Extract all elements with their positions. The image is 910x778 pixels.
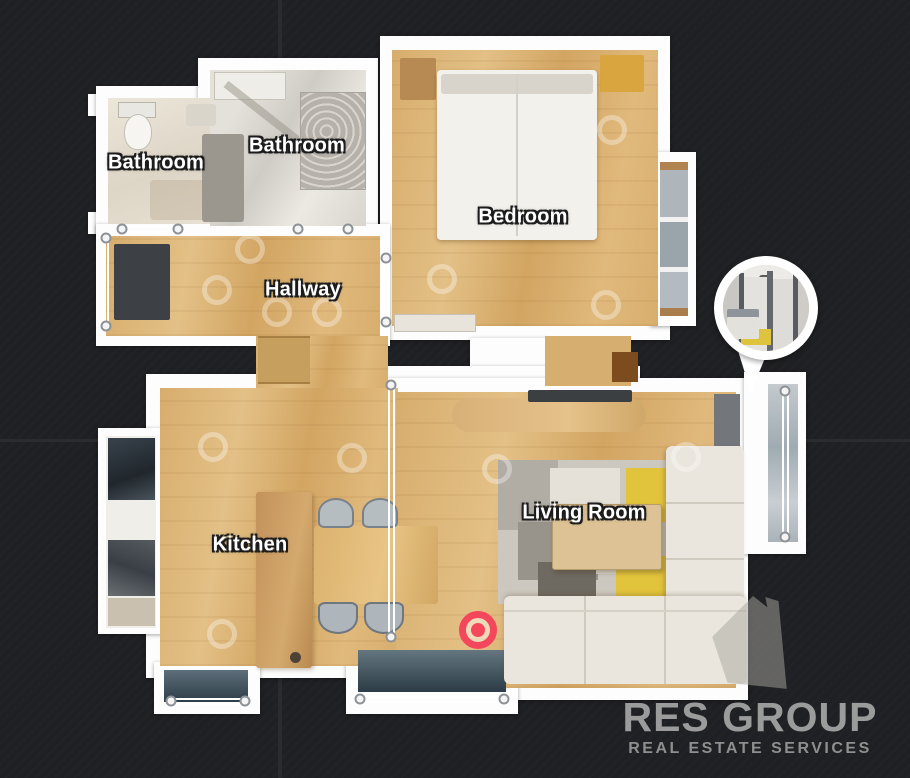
dining-chair	[364, 602, 404, 634]
kitchen-shelf	[108, 598, 155, 626]
wall-opening-node	[381, 253, 392, 264]
current-position-dot	[471, 623, 485, 637]
room-label-bathroom-2: Bathroom	[249, 135, 345, 158]
bedroom-bench	[394, 314, 476, 332]
wall-opening-node	[101, 233, 112, 244]
window-symbol-center	[360, 696, 504, 703]
bedroom-door-symbol	[383, 258, 390, 322]
entrance-doormat	[114, 244, 170, 320]
panorama-preview-bubble[interactable]	[714, 256, 818, 360]
bathroom2-door-symbol	[298, 226, 348, 233]
res-group-title: RES GROUP	[622, 694, 877, 741]
sideboard-dark-panel	[612, 352, 638, 382]
wall-opening-node	[780, 386, 791, 397]
wall-opening-node	[355, 694, 366, 705]
wall-opening-node	[240, 696, 251, 707]
room-label-kitchen: Kitchen	[213, 534, 288, 557]
kitchen-island	[256, 492, 312, 668]
window-glass-center	[358, 650, 506, 692]
window-glass-bedroom	[660, 162, 688, 316]
room-label-bathroom-1: Bathroom	[108, 152, 204, 175]
entrance-door-symbol	[102, 238, 109, 326]
wall-opening-node	[386, 632, 397, 643]
navigation-waypoint[interactable]	[591, 290, 621, 320]
kitchen-stove	[108, 540, 155, 596]
bubble-photo	[723, 265, 809, 351]
wall-opening-node	[101, 321, 112, 332]
dining-chair	[318, 498, 354, 528]
dining-chair	[318, 602, 358, 634]
kitchen-living-divider-symbol	[388, 385, 395, 637]
wall-opening-node	[166, 696, 177, 707]
wall-opening-node	[293, 224, 304, 235]
window-symbol-right	[782, 391, 789, 537]
navigation-waypoint[interactable]	[207, 619, 237, 649]
wall-opening-node	[780, 532, 791, 543]
wall-opening-node	[499, 694, 510, 705]
wall-opening-node	[343, 224, 354, 235]
tv-console	[452, 398, 646, 432]
navigation-waypoint[interactable]	[198, 432, 228, 462]
navigation-waypoint[interactable]	[235, 234, 265, 264]
navigation-waypoint[interactable]	[202, 275, 232, 305]
tv	[528, 390, 632, 402]
island-knob	[290, 652, 301, 663]
bathroom2-mat	[202, 134, 244, 222]
navigation-waypoint[interactable]	[427, 264, 457, 294]
navigation-waypoint[interactable]	[482, 454, 512, 484]
sofa-base	[504, 596, 746, 684]
res-group-subtitle: REAL ESTATE SERVICES	[628, 740, 872, 758]
room-label-hallway: Hallway	[265, 279, 341, 302]
nightstand-left	[400, 58, 436, 100]
wall-opening-node	[173, 224, 184, 235]
hallway-closet	[258, 336, 310, 384]
current-position-marker	[459, 611, 497, 649]
room-label-living-room: Living Room	[522, 502, 645, 525]
navigation-waypoint[interactable]	[312, 297, 342, 327]
floorplan-viewport: Bathroom Bathroom Bedroom Hallway Kitche…	[0, 0, 910, 778]
navigation-waypoint[interactable]	[671, 442, 701, 472]
cabinet-right	[600, 55, 644, 92]
wall-opening-node	[117, 224, 128, 235]
toilet-bowl	[124, 114, 152, 150]
bathroom-sink	[186, 104, 216, 126]
kitchen-sink-appliance	[108, 438, 155, 500]
sofa-chaise	[666, 446, 744, 616]
bathroom-floor-patch	[150, 180, 210, 220]
navigation-waypoint[interactable]	[337, 443, 367, 473]
navigation-waypoint[interactable]	[262, 297, 292, 327]
wall-opening-node	[386, 380, 397, 391]
window-symbol-left	[171, 698, 245, 705]
wall-opening-node	[381, 317, 392, 328]
dining-table	[314, 526, 438, 604]
bathroom1-door-symbol	[122, 226, 178, 233]
navigation-waypoint[interactable]	[597, 115, 627, 145]
room-label-bedroom: Bedroom	[478, 206, 567, 229]
